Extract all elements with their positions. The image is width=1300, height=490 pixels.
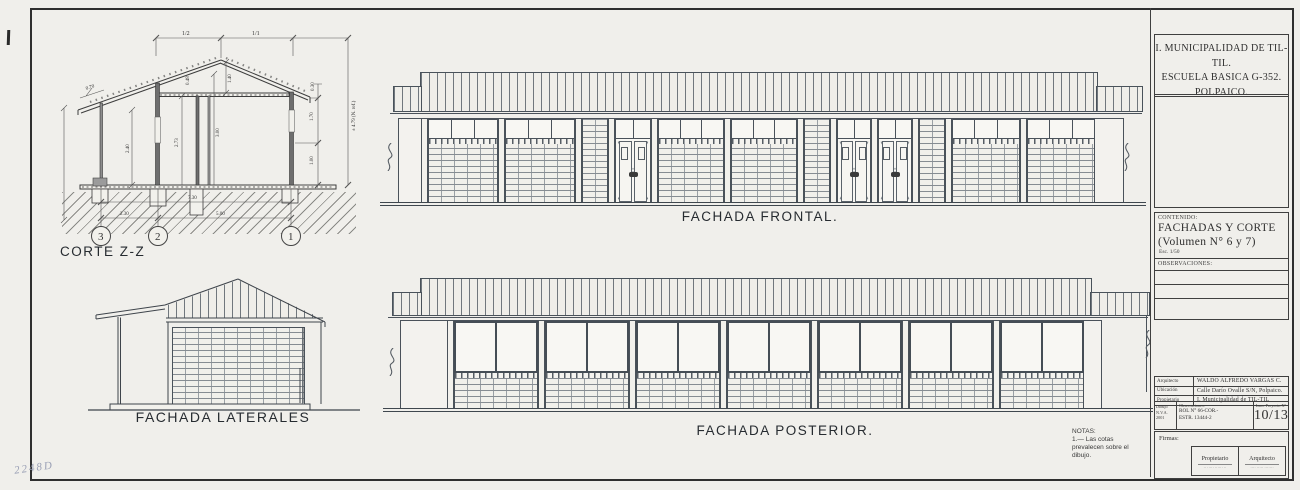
wall-segment <box>1084 321 1101 409</box>
wall-post <box>993 321 1000 409</box>
architect-label: Arquitecto <box>1155 377 1194 386</box>
window-pane <box>547 323 588 371</box>
window-pane <box>497 323 536 371</box>
break-symbol <box>383 143 395 171</box>
dim-total: 7.30 <box>188 196 197 201</box>
dim-pitch-right: 1/1 <box>252 31 260 37</box>
info-row-location: Ubicación Calle Darío Ovalle S/N, Polpai… <box>1155 387 1288 397</box>
wall-post <box>421 119 428 203</box>
transom-window <box>658 119 724 139</box>
transom-window <box>878 119 912 139</box>
observaciones-label: OBSERVACIONES: <box>1155 259 1288 267</box>
lateral-outline <box>88 276 373 421</box>
drawn-by-cell: Dibujo N.V.A. 2001 <box>1155 402 1177 429</box>
section-walls <box>100 83 294 185</box>
window-pane <box>729 323 770 371</box>
window-pane <box>754 120 776 138</box>
frontal-wall <box>398 118 1124 203</box>
window-bay <box>428 119 498 203</box>
window-bay <box>1000 321 1084 409</box>
door-hardware <box>891 172 900 177</box>
transom-window <box>615 119 651 139</box>
window-pane <box>1043 323 1082 371</box>
dim-ref-level: ± 4.79 (N. ref.) <box>352 100 357 131</box>
window-pane <box>1028 120 1050 138</box>
brick-pier <box>582 119 608 203</box>
window-pane <box>879 120 896 138</box>
transom-window <box>952 119 1020 139</box>
wall-post <box>651 119 658 203</box>
observaciones-blank-row <box>1155 270 1288 284</box>
window-bay <box>636 321 720 409</box>
window-pane <box>506 120 529 138</box>
wall-post <box>575 119 582 203</box>
frontal-ground-line <box>380 202 1146 206</box>
title-block-empty-panel <box>1154 94 1289 208</box>
frontal-roof-step-right <box>1096 86 1143 112</box>
window-pane <box>616 120 634 138</box>
window-pane <box>702 120 723 138</box>
dim-span-main: 5.00 <box>216 212 225 217</box>
observaciones-blank-row <box>1155 284 1288 298</box>
window-bay <box>505 119 575 203</box>
notes-title: NOTAS: <box>1072 428 1156 436</box>
classroom-window <box>636 321 720 373</box>
architect-signature-microtext: ···· ····· ······· <box>1245 464 1279 470</box>
window-pane <box>452 120 475 138</box>
window-pane <box>634 120 651 138</box>
window-pane <box>911 323 952 371</box>
window-bay <box>545 321 629 409</box>
wall-post <box>912 119 919 203</box>
window-pane <box>838 120 855 138</box>
classroom-window <box>727 321 811 373</box>
window-pane <box>638 323 679 371</box>
wall-post <box>871 119 878 203</box>
corte-section-drawing: 1/2 1/1 0.30 1.70 1.00 0.70 2.40 1.40 0.… <box>56 14 366 266</box>
door-hardware <box>850 172 859 177</box>
wall-post <box>830 119 837 203</box>
vision-panel <box>621 147 628 160</box>
brick-wainscot <box>545 378 629 409</box>
section-openings <box>93 110 295 186</box>
notes-line: 1.— Las cotas <box>1072 436 1156 444</box>
posterior-roof-fascia <box>420 278 1092 316</box>
classroom-window <box>454 321 538 373</box>
brick-panel <box>731 144 797 203</box>
drawn-by-line: 2001 <box>1156 415 1176 421</box>
door-bay <box>615 119 651 203</box>
brick-wainscot <box>727 378 811 409</box>
window-pane <box>429 120 452 138</box>
corte-label: CORTE Z-Z <box>60 244 180 259</box>
wall-post <box>811 321 818 409</box>
brick-wainscot <box>1000 378 1084 409</box>
brick-panel <box>952 144 1020 203</box>
window-bay <box>731 119 797 203</box>
dim-room-b: 3.00 <box>216 128 221 137</box>
location-label: Ubicación <box>1155 387 1194 396</box>
transom-window <box>505 119 575 139</box>
owner-signature-microtext: ·· ····· ······ ·· <box>1198 464 1232 470</box>
architect-role-label: Arquitecto <box>1239 456 1285 462</box>
window-pane <box>456 323 497 371</box>
wall-post <box>797 119 804 203</box>
location-value: Calle Darío Ovalle S/N, Polpaico. <box>1194 388 1283 394</box>
brick-wainscot <box>454 378 538 409</box>
transom-window <box>428 119 498 139</box>
classroom-window <box>818 321 902 373</box>
break-symbol <box>385 348 397 376</box>
municipality-line: I. MUNICIPALIDAD DE TIL-TIL. <box>1155 42 1288 71</box>
brick-panel <box>505 144 575 203</box>
signature-table: Propietario ·· ····· ······ ·· Arquitect… <box>1191 446 1286 476</box>
observations-line: ROL N° 66-COR.- <box>1179 408 1253 415</box>
door-bay <box>837 119 871 203</box>
brick-wainscot <box>818 378 902 409</box>
notes-block: NOTAS: 1.— Las cotas prevalecen sobre el… <box>1072 428 1156 460</box>
dim-room-a: 2.73 <box>175 138 180 147</box>
registration-mark <box>7 30 11 45</box>
window-pane <box>861 323 900 371</box>
window-bay <box>952 119 1020 203</box>
window-pane <box>952 323 991 371</box>
dim-eave: 0.30 <box>311 82 316 91</box>
double-door <box>837 139 871 203</box>
owner-signature-cell: Propietario ·· ····· ······ ·· <box>1192 447 1239 475</box>
window-bay <box>454 321 538 409</box>
wall-post <box>720 321 727 409</box>
dim-porch-wall: 2.40 <box>126 144 131 153</box>
wall-post <box>498 119 505 203</box>
title-block-separator <box>1150 8 1151 477</box>
brick-wainscot <box>909 378 993 409</box>
window-pane <box>775 120 796 138</box>
break-symbol <box>1141 330 1153 358</box>
title-block-contents: CONTENIDO: FACHADAS Y CORTE (Volumen N° … <box>1154 212 1289 320</box>
window-pane <box>681 120 703 138</box>
notes-line: dibujo. <box>1072 452 1156 460</box>
grid-axis-bubbles <box>92 227 301 246</box>
window-bay <box>1027 119 1095 203</box>
brick-wainscot <box>636 378 720 409</box>
window-pane <box>1050 120 1072 138</box>
axis-bubble-1: 1 <box>288 231 294 243</box>
posterior-roof-step-left <box>392 292 422 316</box>
wall-post <box>629 321 636 409</box>
scale-note: Esc. 1/50 <box>1155 249 1288 255</box>
architect-name: WALDO ALFREDO VARGAS C. <box>1194 378 1282 384</box>
dim-slope: 0.70 <box>85 84 95 92</box>
transom-window <box>731 119 797 139</box>
transom-window <box>1027 119 1095 139</box>
window-pane <box>529 120 552 138</box>
window-pane <box>732 120 754 138</box>
school-line: ESCUELA BASICA G-352. <box>1155 71 1288 86</box>
window-pane <box>770 323 809 371</box>
vision-panel <box>859 147 866 160</box>
laterales-label: FACHADA LATERALES <box>118 409 328 425</box>
meta-row: Dibujo N.V.A. 2001 Observaciones: ROL N°… <box>1154 401 1289 430</box>
classroom-window <box>545 321 629 373</box>
double-door <box>615 139 651 203</box>
dim-pitch-left: 1/2 <box>182 31 190 37</box>
brick-pier <box>919 119 945 203</box>
window-pane <box>1002 323 1043 371</box>
signatures-box: Firmas: Propietario ·· ····· ······ ·· A… <box>1154 431 1289 479</box>
owner-role-label: Propietario <box>1192 456 1238 462</box>
architect-signature-cell: Arquitecto ···· ····· ······· <box>1239 447 1285 475</box>
frontal-label: FACHADA FRONTAL. <box>640 209 880 224</box>
window-pane <box>679 323 718 371</box>
posterior-ground-line <box>383 408 1153 412</box>
vision-panel <box>842 147 849 160</box>
firmas-label: Firmas: <box>1159 435 1179 442</box>
roof-section-lines <box>78 58 336 189</box>
dim-wall-upper: 1.70 <box>310 112 315 121</box>
window-pane <box>953 120 975 138</box>
sheet-content-subtitle: (Volumen N° 6 y 7) <box>1155 235 1288 249</box>
classroom-window <box>1000 321 1084 373</box>
wall-post <box>1020 119 1027 203</box>
frontal-roof-step-left <box>393 86 422 112</box>
window-pane <box>855 120 871 138</box>
observaciones-blank-row <box>1155 298 1288 312</box>
vision-panel <box>883 147 890 160</box>
wall-post <box>945 119 952 203</box>
wall-post <box>724 119 731 203</box>
vision-panel <box>638 147 645 160</box>
wall-segment <box>401 321 447 409</box>
window-pane <box>896 120 912 138</box>
wall-segment <box>1095 119 1123 203</box>
door-bay <box>878 119 912 203</box>
break-symbol <box>1120 143 1132 171</box>
dim-ridge: 1.40 <box>228 74 233 83</box>
wall-post <box>902 321 909 409</box>
window-bay <box>818 321 902 409</box>
architectural-plan-sheet: { "labels": { "corte": "CORTE Z-Z", "lat… <box>0 0 1300 490</box>
info-row-architect: Arquitecto WALDO ALFREDO VARGAS C. <box>1155 377 1288 387</box>
posterior-eave-line <box>388 317 1148 318</box>
axis-bubble-2: 2 <box>155 231 161 243</box>
window-pane <box>975 120 997 138</box>
sheet-number-value: 10/13 <box>1254 408 1288 424</box>
dim-purlin: 0.48 <box>186 76 191 85</box>
frontal-roof-fascia <box>420 72 1098 112</box>
window-pane <box>475 120 497 138</box>
double-door <box>878 139 912 203</box>
window-bay <box>909 321 993 409</box>
brick-panel <box>428 144 498 203</box>
dim-wall-lower: 1.00 <box>310 156 315 165</box>
window-pane <box>820 323 861 371</box>
observations-cell: Observaciones: ROL N° 66-COR.- ESTR. 134… <box>1177 402 1254 429</box>
window-bay <box>658 119 724 203</box>
wall-post <box>447 321 454 409</box>
window-pane <box>588 323 627 371</box>
lateral-elevation <box>88 276 373 421</box>
wall-segment <box>399 119 421 203</box>
axis-bubble-3: 3 <box>98 231 104 243</box>
posterior-roof-step-right <box>1090 292 1150 316</box>
frontal-eave-line <box>390 113 1142 114</box>
notes-line: prevalecen sobre el <box>1072 444 1156 452</box>
sheet-number-cell: Lam. Proyecto N° 10/13 <box>1254 402 1288 429</box>
sheet-content-title: FACHADAS Y CORTE <box>1155 221 1288 235</box>
vision-panel <box>900 147 907 160</box>
dim-span-porch: 2.30 <box>120 212 129 217</box>
window-pane <box>1073 120 1094 138</box>
observations-line: ESTR. 13444-2 <box>1179 415 1253 422</box>
transom-window <box>837 119 871 139</box>
brick-pier <box>804 119 830 203</box>
brick-panel <box>1027 144 1095 203</box>
wall-post <box>538 321 545 409</box>
posterior-label: FACHADA POSTERIOR. <box>655 423 915 438</box>
window-pane <box>998 120 1019 138</box>
classroom-window <box>909 321 993 373</box>
posterior-wall <box>400 320 1102 409</box>
contenido-label: CONTENIDO: <box>1155 213 1288 221</box>
brick-panel <box>658 144 724 203</box>
window-pane <box>659 120 681 138</box>
wall-post <box>608 119 615 203</box>
window-bay <box>727 321 811 409</box>
title-block-header: I. MUNICIPALIDAD DE TIL-TIL. ESCUELA BAS… <box>1154 34 1289 97</box>
window-pane <box>552 120 574 138</box>
door-hardware <box>629 172 638 177</box>
